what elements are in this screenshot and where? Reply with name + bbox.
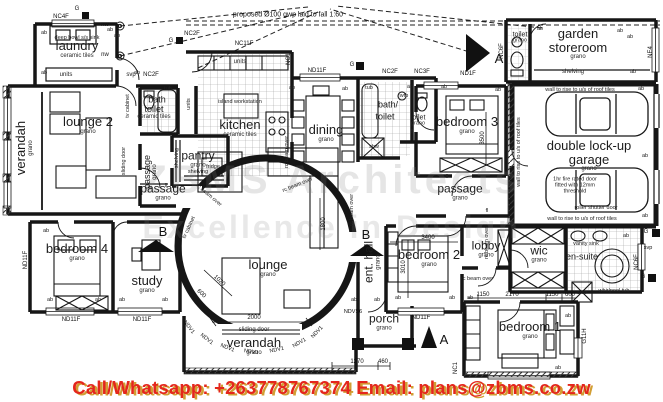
ab-tag: ab [41, 31, 47, 37]
roller-shutter-note: roller shutter door [574, 206, 617, 212]
window-code-nc11f: NC11F [235, 41, 254, 47]
ab-tag: ab [565, 314, 571, 320]
units-label-laundry: units [60, 72, 73, 78]
window-code-nc3f: NC3F [414, 69, 430, 75]
fl-tag: fl [411, 130, 414, 136]
ab-tag: ab [407, 85, 413, 91]
gully-code-g1: G [75, 6, 80, 12]
ab-tag: ab [162, 298, 168, 304]
ab-tag: ab [342, 87, 348, 93]
ab-tag: ab [627, 35, 633, 41]
wfb-label: wfb [400, 94, 409, 100]
ab-tag: ab [642, 154, 648, 160]
gully-code-g2: G [169, 38, 174, 44]
room-label-garden-storeroom: garden storeroomgrano [539, 27, 617, 61]
room-label-lounge: loungegrano [248, 258, 287, 278]
shelving-label-pantry-vert: shelving [175, 148, 181, 168]
section-marker-a-top: A [495, 52, 504, 66]
rc-beam-note-4: rc beam over [485, 227, 491, 259]
room-label-toilet1: toiletceramic tiles [137, 105, 170, 121]
wall-rise-note-bottom: wall to rise to u/s of roof tiles [547, 217, 616, 223]
dim-2000: 2000 [247, 315, 260, 321]
tub-label-bath1: tub [164, 87, 172, 93]
window-code-g11h: G11H [582, 328, 588, 343]
window-code-nc2f-1: NC2F [184, 31, 200, 37]
ab-tag: ab [467, 296, 473, 302]
top-pipe-note: proposed Ø100 gwp laid to fall 1:60 [233, 11, 343, 18]
whirlpool-tub-label: whirlpool tub [597, 289, 631, 295]
nw-tag-2: nw [101, 52, 109, 58]
shelving-label-pantry: shelving [188, 170, 208, 176]
room-label-lounge2: lounge 2grano [63, 115, 113, 135]
window-code-nc1-top: NC1 [286, 53, 292, 65]
shelving-label-storeroom: shelving [562, 69, 584, 75]
window-code-nc1-bottom: NC1 [453, 362, 459, 374]
dim-600-a: 600 [565, 292, 575, 298]
ab-tag: ab [495, 88, 501, 94]
section-marker-a-bottom: A [440, 333, 449, 347]
fl-tag: fl [417, 119, 420, 125]
room-label-en-suite: en-suite [566, 252, 598, 261]
island-workstation-label: island workstation [218, 100, 262, 106]
fl-tag: fl [446, 175, 449, 181]
room-label-bath2: bath/ [378, 100, 398, 109]
ab-tag: ab [642, 214, 648, 220]
ab-tag: ab [134, 71, 140, 77]
ab-tag: ab [555, 366, 561, 372]
dim-2170: 2170 [505, 292, 518, 298]
rc-beam-note-5: rc beam over [461, 277, 493, 283]
ab-tag: ab [537, 27, 543, 33]
ab-tag: ab [107, 28, 113, 34]
fridge-label: fridge [206, 165, 220, 171]
units-label-kitchen: units [234, 59, 247, 65]
room-label-bedroom4: bedroom 4grano [46, 242, 108, 262]
rc-beam-note-3: rc beam over [350, 194, 356, 226]
sink-label: deep bowl s/s sink [55, 36, 100, 42]
ab-tag: ab [638, 87, 644, 93]
contact-banner: Call/Whatsapp: +263778767374 Email: plan… [72, 377, 590, 399]
dim-1270: 1270 [350, 359, 363, 365]
room-label-laundry: laundryceramic tiles [56, 39, 99, 59]
ab-tag: ab [289, 86, 295, 92]
sliding-door-label-lounge: sliding door [239, 327, 270, 333]
ab-tag: ab [617, 29, 623, 35]
wall-rise-note-top: wall to rise to u/s of roof tiles [545, 88, 614, 94]
section-marker-b-left: B [159, 225, 168, 239]
ab-tag: ab [47, 298, 53, 304]
tub-label-bath2: tub [365, 86, 373, 92]
room-label-bedroom3: bedroom 3grano [436, 115, 498, 135]
room-label-toilet2: toilet [375, 112, 394, 121]
room-label-ent-hall: ent. hallgrano [363, 241, 382, 283]
fire-door-note: 1hr fire rated door fitted with 12mm thr… [547, 177, 603, 194]
ab-tag: ab [41, 71, 47, 77]
svp-tag-2: svp [644, 246, 653, 252]
ab-tag: ab [395, 296, 401, 302]
vanity-sink-label: vanity sink [573, 242, 599, 248]
gully-code-g3: G [350, 62, 355, 68]
gully-code-g4: G [644, 229, 649, 235]
room-label-kitchen: kitchenceramic tiles [219, 118, 260, 138]
window-code-nc4f: NC4F [53, 14, 69, 20]
window-code-ndvs6: NDVS6 [344, 310, 362, 316]
ab-tag: ab [351, 298, 357, 304]
dim-3400: 3400 [421, 235, 434, 241]
dim-3010: 3010 [401, 260, 407, 273]
room-label-passage-horiz: passagegrano [140, 183, 185, 202]
dim-3500: 3500 [480, 131, 486, 144]
dim-1150-b: 1150 [546, 292, 559, 298]
window-code-ne4: NE4 [648, 46, 654, 58]
units-label-kitchen-left: units [187, 98, 193, 110]
ab-tag: ab [623, 234, 629, 240]
room-label-wic: wicgrano [530, 245, 547, 264]
window-code-nd11f-bed2: ND11F [412, 315, 431, 321]
window-code-nd11f-bed4: ND11F [62, 317, 81, 323]
room-label-porch: porchgrano [369, 313, 399, 332]
room-label-dining: dininggrano [309, 123, 344, 143]
window-code-nc2f-2: NC2F [143, 72, 159, 78]
dim-1800: 1800 [321, 217, 327, 230]
ab-tag: ab [43, 229, 49, 235]
gully-code-g5: G [641, 274, 646, 280]
dim-1150-a: 1150 [477, 292, 490, 298]
section-marker-b-right: B [362, 228, 371, 242]
room-label-passage-right: passagegrano [437, 183, 482, 202]
tv-cabinet-label-vert: tv cabinet [126, 94, 132, 118]
room-label-verandah-left: verandahgrano [14, 121, 34, 175]
room-label-bedroom1: bedroom 1grano [499, 320, 561, 340]
shw-label-bath2: shw [369, 145, 379, 151]
window-code-nd11f-left: ND11F [23, 251, 29, 270]
dim-460: 460 [378, 359, 388, 365]
window-code-nc6f-2: NC6F [634, 254, 640, 270]
fl-tag: fl [165, 184, 168, 190]
room-label-study: studygrano [131, 274, 162, 294]
ab-tag: ab [374, 298, 380, 304]
room-label-toilet-topright: toiletgrano [513, 31, 528, 44]
ab-tag: ab [630, 70, 636, 76]
room-label-garage: double lock-up garagegrano [543, 139, 635, 173]
rc-beam-note-6: rc beam over [285, 136, 291, 168]
ab-tag: ab [114, 34, 120, 40]
floor-plan-canvas: ZBMS Architects Excellence in Design lau… [0, 0, 663, 402]
window-code-nd1f: ND1F [460, 71, 476, 77]
shw-label-ensuite: shw [577, 291, 587, 297]
window-code-nd11f-study: ND11F [133, 317, 152, 323]
ab-tag: ab [95, 298, 101, 304]
sliding-door-label-lounge2: sliding door [122, 147, 128, 175]
window-code-nc2f-3: NC2F [382, 69, 398, 75]
fl-tag: fl [486, 209, 489, 215]
wall-rise-note-left: wall to rise to u/s of roof tiles [517, 117, 523, 186]
ab-tag: ab [441, 85, 447, 91]
room-label-bedroom2: bedroom 2grano [398, 248, 460, 268]
window-code-nd11f-dining: ND11F [308, 68, 327, 74]
ab-tag: ab [449, 296, 455, 302]
ab-tag: ab [119, 298, 125, 304]
